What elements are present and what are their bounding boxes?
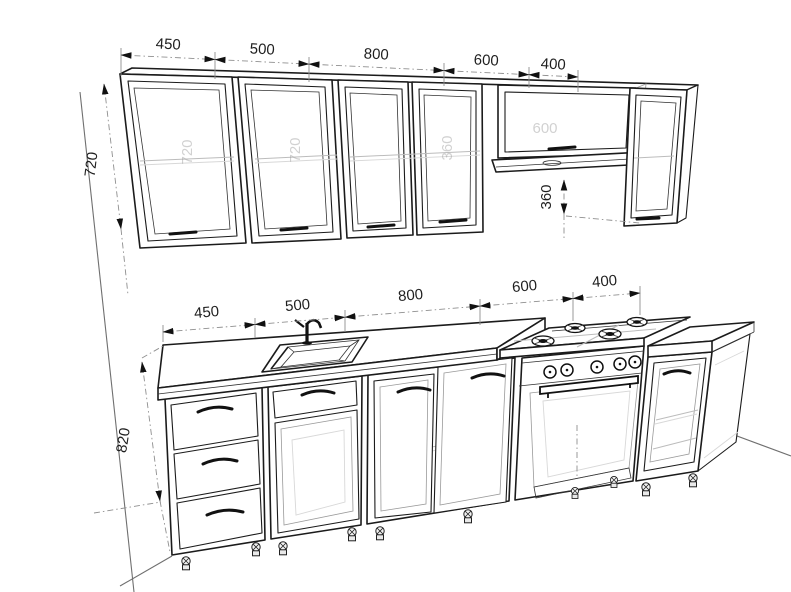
dim-upper-450: 450 [155, 35, 181, 53]
cabinet-foot [376, 527, 384, 540]
drawing-canvas: 720 720 360 [0, 0, 791, 592]
dim-lower-600: 600 [511, 277, 537, 296]
upper-cabinet-400 [624, 85, 698, 226]
cooktop-burner [565, 324, 585, 333]
cabinet-foot [464, 510, 472, 523]
upper-cabinet-500: 720 [238, 77, 341, 243]
cabinet-foot [182, 557, 190, 570]
watermark-720: 720 [287, 137, 304, 162]
door-handle [637, 218, 659, 219]
sink-cabinet-500 [268, 376, 362, 539]
upper-cabinets: 720 720 360 [120, 68, 698, 248]
cabinet-foot [610, 476, 617, 487]
dim-upper-500: 500 [249, 40, 275, 58]
dim-lower-500: 500 [284, 296, 310, 315]
cabinet-foot [689, 474, 697, 487]
range-body [515, 346, 644, 500]
base-cabinets [158, 317, 754, 570]
cabinet-foot [252, 543, 260, 556]
cabinet-foot [571, 487, 578, 498]
cabinet-foot [279, 542, 287, 555]
hood-cabinet-600: 600 [498, 84, 646, 158]
kitchen-drawing: 720 720 360 [0, 0, 791, 592]
door-handle [368, 225, 394, 227]
watermark-720: 720 [179, 139, 196, 164]
cooktop-burner [627, 318, 647, 327]
watermark-360: 360 [439, 135, 456, 160]
upper-cabinet-800: 360 [338, 80, 483, 238]
dim-upper-400: 400 [540, 55, 566, 73]
cabinet-foot [348, 528, 356, 541]
base-cabinet-800 [367, 358, 515, 524]
upper-cabinet-450: 720 [120, 74, 246, 248]
dim-lower-800: 800 [397, 286, 423, 305]
dim-lower-height: 820 [113, 427, 134, 454]
floor-line-left [120, 556, 172, 586]
door-handle [170, 232, 196, 234]
cabinet-foot [642, 483, 650, 496]
dim-upper-800: 800 [363, 45, 389, 63]
base-cabinet-400 [636, 322, 754, 481]
door-handle [549, 147, 575, 149]
dim-lower-450: 450 [193, 303, 219, 322]
watermark-600: 600 [532, 120, 557, 137]
dim-hood-offset: 360 [538, 184, 555, 209]
dim-upper-height: 720 [82, 151, 102, 178]
dim-lower-400: 400 [591, 272, 617, 291]
cooktop-burner [532, 336, 554, 346]
door-handle [281, 228, 307, 230]
dimension-720: 720 [82, 84, 128, 295]
cooktop-burner [599, 329, 621, 339]
dim-upper-600: 600 [473, 51, 499, 69]
door-handle [440, 220, 466, 222]
base-cabinet-450-drawers [165, 387, 265, 555]
